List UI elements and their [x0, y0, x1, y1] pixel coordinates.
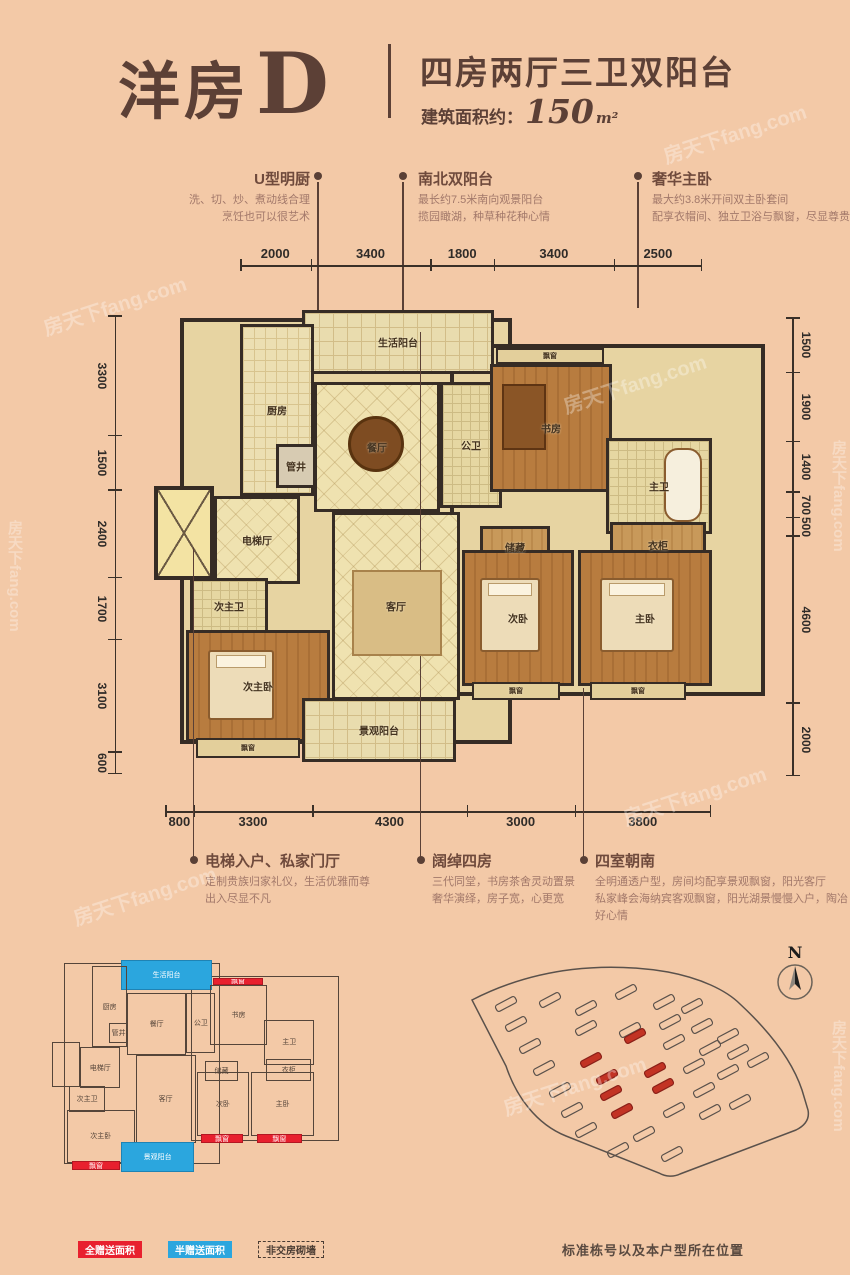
- mini-room-shaft: [52, 1042, 80, 1086]
- mini-room-书房: 书房: [210, 985, 267, 1045]
- dim-segment: 2500: [614, 246, 702, 272]
- dim-value: 500: [799, 517, 813, 537]
- furniture-tub: [664, 448, 702, 522]
- dim-segment: 3000: [467, 806, 575, 832]
- room-label: 餐厅: [367, 440, 387, 455]
- room-label: 飘窗: [543, 351, 557, 361]
- area-label: 建筑面积约：: [421, 103, 523, 128]
- mini-room-飘窗: 飘窗: [72, 1161, 121, 1170]
- site-building-highlighted: [644, 1062, 667, 1079]
- dim-segment: 4600: [786, 536, 820, 703]
- dim-segment: 1500: [786, 318, 820, 373]
- dim-segment: 4300: [312, 806, 466, 832]
- site-building: [683, 1058, 706, 1075]
- site-boundary: [472, 967, 808, 1176]
- callout-balcony-title: 南北双阳台: [418, 168, 628, 189]
- callout-balcony-dot: [399, 172, 407, 180]
- room-label: 主卧: [635, 611, 655, 626]
- dim-endtick: [108, 773, 122, 775]
- dim-value: 4300: [312, 814, 466, 829]
- site-building: [575, 1000, 598, 1017]
- callout-kitchen-dot: [314, 172, 322, 180]
- site-building-highlighted: [624, 1028, 647, 1045]
- dim-value: 3400: [494, 246, 614, 261]
- mini-room-飘窗: 飘窗: [257, 1134, 302, 1142]
- callout-kitchen-desc1: 洗、切、炒、煮动线合理: [130, 192, 310, 209]
- room-label: 储藏: [505, 540, 525, 555]
- title-cjk: 洋房: [118, 41, 250, 131]
- site-building: [661, 1146, 684, 1163]
- site-caption: 标准栋号以及本户型所在位置: [468, 1240, 838, 1259]
- room-label: 飘窗: [631, 686, 645, 696]
- site-building-highlighted: [580, 1052, 603, 1069]
- dim-segment: 1500: [88, 436, 122, 491]
- room-label: 客厅: [386, 599, 406, 614]
- room-label: 电梯厅: [242, 533, 272, 548]
- site-building: [663, 1034, 686, 1051]
- site-buildings: [495, 984, 770, 1163]
- site-building: [693, 1082, 716, 1099]
- furniture-desk: [502, 384, 546, 450]
- watermark: 房天下fang.com: [69, 858, 220, 932]
- site-building: [717, 1028, 740, 1045]
- dim-endtick: [786, 775, 800, 777]
- site-building: [495, 996, 518, 1013]
- room-label: 管井: [286, 459, 306, 474]
- watermark: 房天下fang.com: [4, 520, 25, 632]
- callout-south-desc2: 私家峰会海纳宾客观飘窗，阳光湖景慢慢入户，陶冶好心情: [595, 891, 850, 925]
- callout-fourrooms: 阔绰四房 三代同堂，书房茶舍灵动置景 奢华演绎，房子宽，心更宽: [432, 850, 592, 908]
- callout-master: 奢华主卧 最大约3.8米开间双主卧套间 配享衣帽间、独立卫浴与飘窗，尽显尊贵: [652, 168, 850, 226]
- dim-segment: 2000: [240, 246, 311, 272]
- site-building-highlighted: [600, 1085, 623, 1102]
- dim-endtick: [710, 805, 712, 817]
- callout-elevator-desc1: 定制贵族归家礼仪，生活优雅而尊: [205, 874, 420, 891]
- dim-segment: 1800: [430, 246, 493, 272]
- dim-value: 800: [165, 814, 194, 829]
- page-title: 洋房 D: [118, 34, 329, 133]
- callout-master-desc1: 最大约3.8米开间双主卧套间: [652, 192, 850, 209]
- room-label: 主卫: [649, 479, 669, 494]
- site-building: [699, 1104, 722, 1121]
- mini-room-景观阳台: 景观阳台: [121, 1142, 193, 1172]
- site-building: [575, 1122, 598, 1139]
- mini-floorplan: 生活阳台厨房餐厅管井公卫飘窗书房主卫衣柜储藏电梯厅次主卫客厅次主卧飘窗景观阳台次…: [38, 948, 358, 1200]
- site-building: [575, 1020, 598, 1037]
- callout-south-dot: [580, 856, 588, 864]
- callout-kitchen-desc2: 烹饪也可以很艺术: [130, 209, 310, 226]
- mini-room-次主卫: 次主卫: [69, 1086, 106, 1112]
- site-building: [607, 1142, 630, 1159]
- dim-segment: 700: [786, 492, 820, 517]
- mini-room-次卧: 次卧: [197, 1072, 250, 1136]
- callout-master-title: 奢华主卧: [652, 168, 850, 189]
- dim-segment: 1400: [786, 442, 820, 493]
- title-divider: [388, 44, 391, 118]
- watermark: 房天下fang.com: [659, 96, 810, 170]
- callout-balcony-desc2: 揽园瞰湖，种草种花种心情: [418, 209, 628, 226]
- mini-room-主卧: 主卧: [251, 1072, 314, 1136]
- mini-room-客厅: 客厅: [136, 1055, 196, 1143]
- dim-value: 1400: [799, 454, 813, 481]
- site-building: [659, 1014, 682, 1031]
- compass: N: [778, 943, 812, 999]
- callout-master-desc2: 配享衣帽间、独立卫浴与飘窗，尽显尊贵: [652, 209, 850, 226]
- room-label: 厨房: [267, 403, 287, 418]
- dim-value: 3000: [467, 814, 575, 829]
- site-building: [681, 998, 704, 1015]
- dim-value: 3300: [95, 363, 109, 390]
- dim-segment: 800: [165, 806, 194, 832]
- dim-segment: 3300: [194, 806, 313, 832]
- dim-value: 3100: [95, 683, 109, 710]
- dim-value: 1900: [799, 394, 813, 421]
- legend-nonhandover-wall: 非交房砌墙: [258, 1241, 324, 1258]
- dim-chain-bottom: 8003300430030003800: [165, 806, 711, 832]
- callout-south-desc1: 全明通透户型，房间均配享景观飘窗，阳光客厅: [595, 874, 850, 891]
- compass-needle-dark: [795, 966, 801, 990]
- area-row: 建筑面积约： 150 m²: [421, 92, 618, 131]
- dim-value: 600: [95, 753, 109, 773]
- dim-value: 3800: [575, 814, 712, 829]
- dim-chain-right: 15001900140070050046002000: [786, 318, 820, 776]
- site-building: [549, 1082, 572, 1099]
- callout-elevator-desc2: 出入尽显不凡: [205, 891, 420, 908]
- legend-full-gift: 全赠送面积: [78, 1241, 142, 1258]
- compass-n-label: N: [788, 943, 803, 962]
- site-building: [533, 1060, 556, 1077]
- title-letter: D: [256, 34, 329, 133]
- dim-segment: 2400: [88, 490, 122, 577]
- dim-value: 700: [799, 495, 813, 515]
- floorplan-poster: { "header": { "title": "洋房", "title_lett…: [0, 0, 850, 1275]
- dim-value: 2400: [95, 521, 109, 548]
- dim-segment: 500: [786, 518, 820, 536]
- callout-elevator-line: [193, 548, 194, 858]
- room-shaft: [154, 486, 214, 580]
- site-building-highlighted: [652, 1078, 675, 1095]
- callout-balcony: 南北双阳台 最长约7.5米南向观景阳台 揽园瞰湖，种草种花种心情: [418, 168, 628, 226]
- compass-needle-light: [789, 966, 795, 990]
- watermark: 房天下fang.com: [828, 440, 849, 552]
- callout-fourrooms-dot: [417, 856, 425, 864]
- dim-segment: 3400: [494, 246, 614, 272]
- callout-master-line: [637, 182, 639, 308]
- room-label: 次主卧: [243, 679, 273, 694]
- site-building: [615, 984, 638, 1001]
- area-unit: m²: [596, 109, 618, 127]
- dim-segment: 3100: [88, 640, 122, 753]
- callout-fourrooms-desc1: 三代同堂，书房茶舍灵动置景: [432, 874, 592, 891]
- dim-value: 1700: [95, 595, 109, 622]
- dim-segment: 3800: [575, 806, 712, 832]
- callout-elevator-title: 电梯入户、私家门厅: [205, 850, 420, 871]
- mini-room-飘窗: 飘窗: [213, 978, 264, 986]
- dim-value: 2000: [240, 246, 311, 261]
- dim-segment: 3400: [311, 246, 431, 272]
- room-label: 飘窗: [241, 743, 255, 753]
- site-building: [653, 994, 676, 1011]
- subtitle: 四房两厅三卫双阳台: [420, 46, 735, 94]
- site-building: [747, 1052, 770, 1069]
- dim-segment: 1700: [88, 578, 122, 640]
- dim-endtick: [701, 259, 703, 271]
- site-building-highlighted: [596, 1069, 619, 1086]
- mini-room-生活阳台: 生活阳台: [121, 960, 211, 990]
- room-label: 次主卫: [214, 599, 244, 614]
- callout-balcony-desc1: 最长约7.5米南向观景阳台: [418, 192, 628, 209]
- room-label: 衣柜: [648, 538, 668, 553]
- room-label: 景观阳台: [359, 723, 399, 738]
- site-building: [505, 1016, 528, 1033]
- dim-value: 1500: [799, 332, 813, 359]
- site-building: [729, 1094, 752, 1111]
- legend-half-gift: 半赠送面积: [168, 1241, 232, 1258]
- site-building: [717, 1064, 740, 1081]
- dim-value: 3300: [194, 814, 313, 829]
- mini-room-电梯厅: 电梯厅: [80, 1047, 120, 1088]
- site-building: [633, 1126, 656, 1143]
- main-floorplan: 生活阳台厨房餐厅管井公卫飘窗书房主卫衣柜储藏电梯厅次主卫客厅次主卧飘窗景观阳台次…: [150, 298, 768, 796]
- site-building: [727, 1044, 750, 1061]
- dim-value: 3400: [311, 246, 431, 261]
- callout-kitchen: U型明厨 洗、切、炒、煮动线合理 烹饪也可以很艺术: [130, 168, 310, 226]
- callout-south: 四室朝南 全明通透户型，房间均配享景观飘窗，阳光客厅 私家峰会海纳宾客观飘窗，阳…: [595, 850, 850, 925]
- dim-value: 1800: [430, 246, 493, 261]
- callout-fourrooms-desc2: 奢华演绎，房子宽，心更宽: [432, 891, 592, 908]
- callout-kitchen-title: U型明厨: [130, 168, 310, 189]
- callout-south-title: 四室朝南: [595, 850, 850, 871]
- site-building: [663, 1102, 686, 1119]
- site-plan: N: [468, 938, 838, 1238]
- site-building: [539, 992, 562, 1009]
- dim-chain-left: 33001500240017003100600: [88, 316, 122, 774]
- dim-value: 1500: [95, 450, 109, 477]
- site-building: [691, 1018, 714, 1035]
- room-label: 次卧: [508, 611, 528, 626]
- dim-segment: 2000: [786, 703, 820, 776]
- room-label: 飘窗: [509, 686, 523, 696]
- site-building: [519, 1038, 542, 1055]
- site-building: [561, 1102, 584, 1119]
- area-value: 150: [525, 92, 594, 131]
- room-label: 公卫: [461, 438, 481, 453]
- dim-value: 4600: [799, 606, 813, 633]
- callout-elevator: 电梯入户、私家门厅 定制贵族归家礼仪，生活优雅而尊 出入尽显不凡: [205, 850, 420, 908]
- callout-elevator-dot: [190, 856, 198, 864]
- mini-room-餐厅: 餐厅: [127, 993, 186, 1054]
- dim-chain-top: 20003400180034002500: [240, 246, 702, 272]
- dim-value: 2000: [799, 726, 813, 753]
- room-label: 书房: [541, 421, 561, 436]
- callout-south-line: [583, 688, 584, 858]
- mini-room-飘窗: 飘窗: [201, 1134, 242, 1142]
- dim-value: 2500: [614, 246, 702, 261]
- site-building: [699, 1040, 722, 1057]
- callout-fourrooms-title: 阔绰四房: [432, 850, 592, 871]
- mini-room-主卫: 主卫: [264, 1020, 314, 1065]
- room-label: 生活阳台: [378, 335, 418, 350]
- callout-master-dot: [634, 172, 642, 180]
- dim-segment: 600: [88, 752, 122, 774]
- site-building-highlighted: [611, 1103, 634, 1120]
- mini-room-管井: 管井: [109, 1023, 128, 1044]
- dim-segment: 3300: [88, 316, 122, 436]
- dim-segment: 1900: [786, 373, 820, 442]
